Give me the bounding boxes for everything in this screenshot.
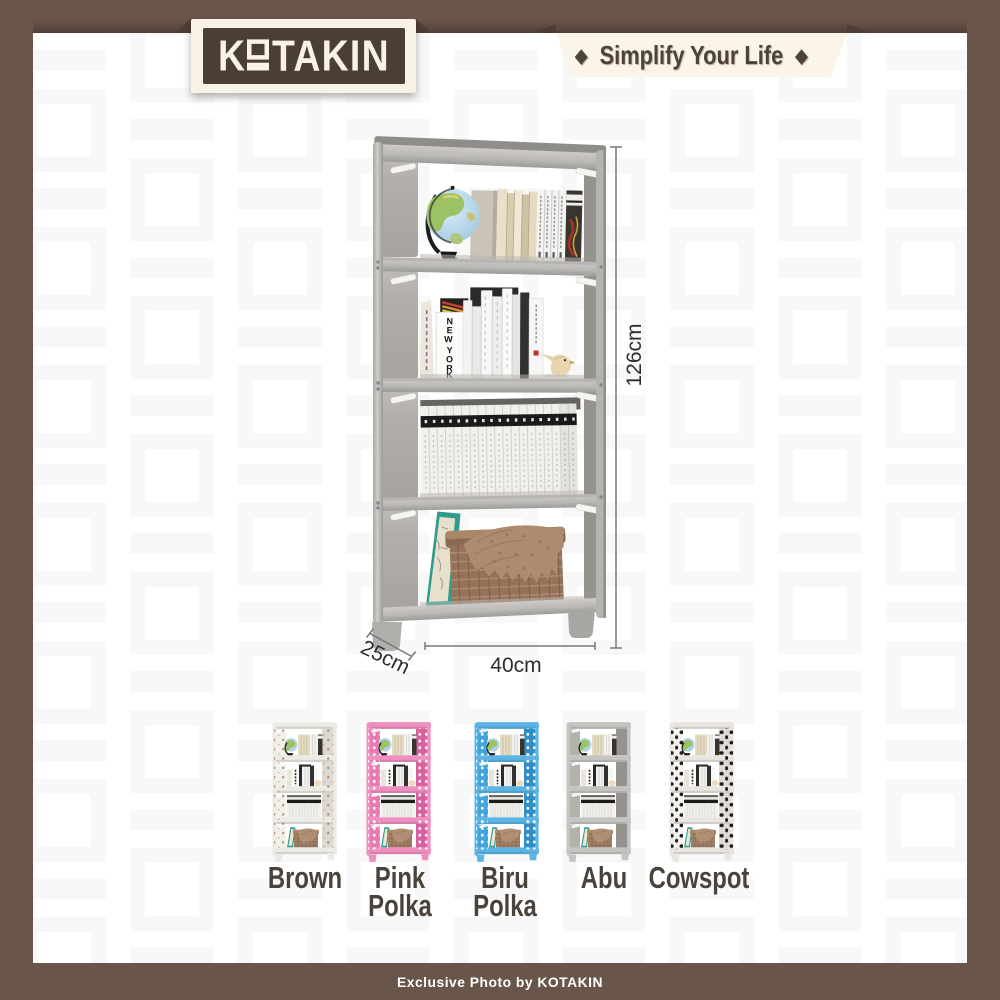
svg-text:TAKIN: TAKIN — [272, 31, 390, 81]
svg-text:126cm: 126cm — [623, 323, 646, 386]
svg-text:K: K — [218, 31, 245, 81]
svg-text:40cm: 40cm — [490, 654, 541, 677]
